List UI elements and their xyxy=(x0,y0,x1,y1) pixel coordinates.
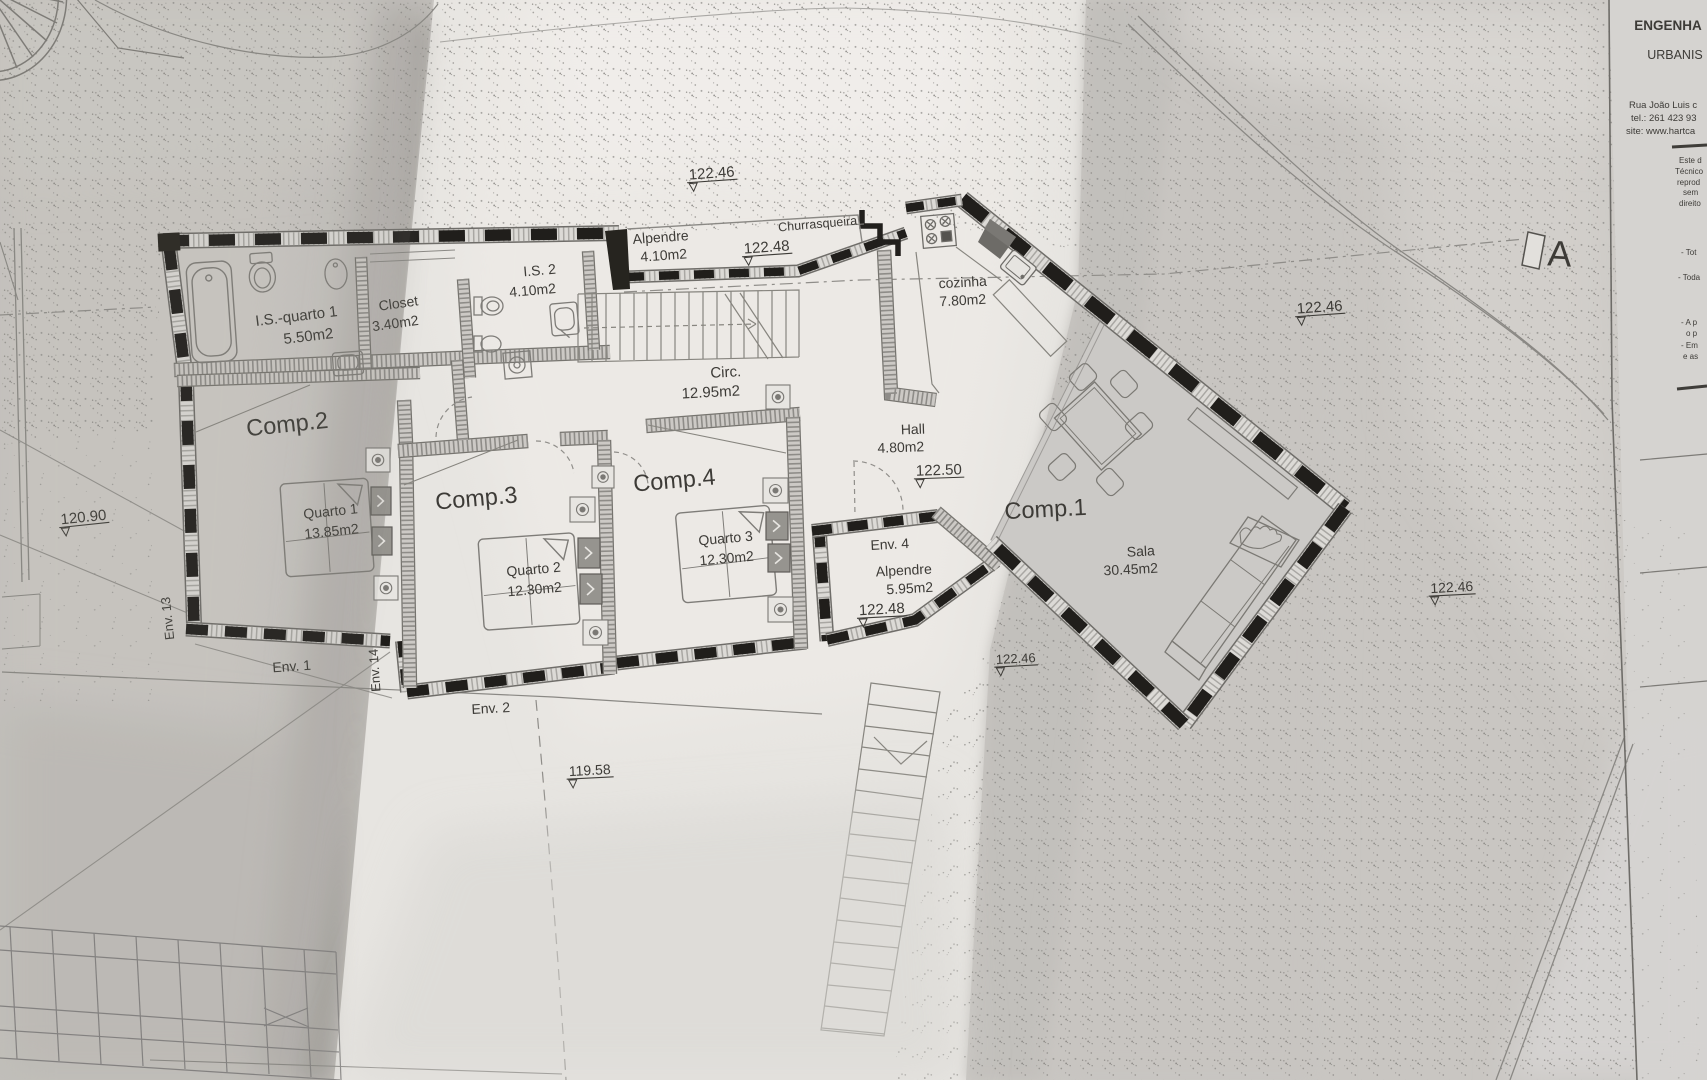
svg-text:Hall: Hall xyxy=(900,421,925,438)
svg-text:Rua João Luis c: Rua João Luis c xyxy=(1629,100,1697,111)
svg-text:Alpendre: Alpendre xyxy=(875,561,932,580)
svg-text:4.80m2: 4.80m2 xyxy=(877,438,924,456)
svg-text:Sala: Sala xyxy=(1126,542,1155,559)
svg-text:- Toda: - Toda xyxy=(1678,273,1701,282)
svg-text:- A p: - A p xyxy=(1681,318,1698,327)
svg-text:Comp.1: Comp.1 xyxy=(1004,494,1088,524)
svg-text:Técnico: Técnico xyxy=(1675,167,1704,176)
svg-text:e as: e as xyxy=(1683,352,1698,361)
svg-text:12.95m2: 12.95m2 xyxy=(681,382,740,402)
svg-text:o p: o p xyxy=(1686,329,1698,338)
svg-text:119.58: 119.58 xyxy=(568,761,611,779)
svg-text:Env. 2: Env. 2 xyxy=(471,699,511,717)
svg-text:reprod: reprod xyxy=(1677,178,1700,187)
svg-text:5.95m2: 5.95m2 xyxy=(886,579,934,597)
svg-text:sem: sem xyxy=(1683,188,1698,197)
svg-text:Este d: Este d xyxy=(1679,156,1702,165)
svg-text:7.80m2: 7.80m2 xyxy=(939,291,987,309)
svg-text:- Tot: - Tot xyxy=(1681,248,1697,257)
svg-text:Circ.: Circ. xyxy=(710,363,742,382)
svg-text:site: www.hartca: site: www.hartca xyxy=(1626,126,1696,137)
svg-text:cozinha: cozinha xyxy=(938,273,987,292)
svg-text:Env. 4: Env. 4 xyxy=(870,535,910,553)
svg-text:tel.: 261 423 93: tel.: 261 423 93 xyxy=(1631,113,1697,124)
svg-text:30.45m2: 30.45m2 xyxy=(1103,560,1158,579)
svg-text:URBANIS: URBANIS xyxy=(1647,48,1703,62)
svg-text:I.S. 2: I.S. 2 xyxy=(523,261,557,280)
svg-text:ENGENHA: ENGENHA xyxy=(1634,18,1702,33)
svg-text:122.46: 122.46 xyxy=(1430,578,1474,596)
svg-text:A: A xyxy=(1547,232,1573,274)
svg-text:- Em: - Em xyxy=(1681,341,1698,350)
svg-text:4.10m2: 4.10m2 xyxy=(640,245,688,264)
svg-text:122.46: 122.46 xyxy=(996,650,1036,667)
svg-text:direito: direito xyxy=(1679,199,1701,208)
